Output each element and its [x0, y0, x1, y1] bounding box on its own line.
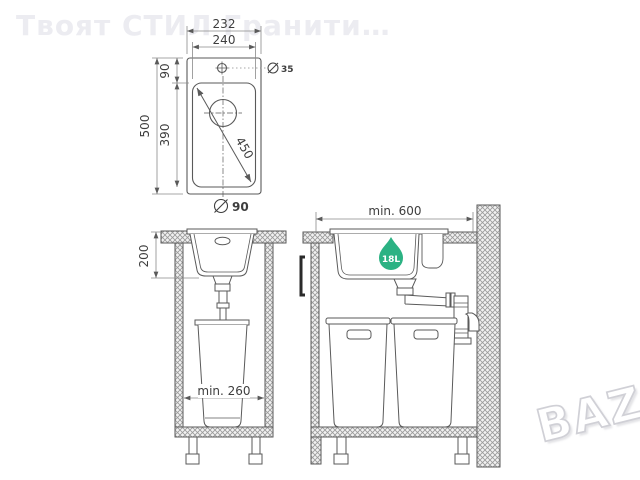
countertop-right: [253, 231, 286, 243]
dim-min-cabinet-depth: min. 600: [368, 204, 421, 218]
countertop-left-side: [303, 232, 333, 243]
faucet-hole-section: [215, 237, 230, 245]
cabinet-legs-side: [334, 437, 469, 464]
waste-bin-2: [391, 318, 457, 427]
waste-bin-1: [326, 318, 390, 427]
top-view: [187, 58, 261, 197]
drain-pipe-front: [213, 276, 232, 321]
product-diagram-image: Твоят СТИЛ Гранити…: [0, 0, 640, 480]
cabinet-legs-front: [186, 437, 262, 464]
drain-diameter-label: 90: [232, 200, 249, 214]
cabinet-wall-right: [265, 243, 273, 427]
dim-width-bowl: 240: [213, 33, 236, 47]
dim-height-top: 90: [158, 63, 172, 78]
dim-height-overall: 500: [138, 115, 152, 138]
cabinet-plinth: [311, 437, 321, 464]
diameter-symbol-90: [215, 200, 228, 213]
dim-width-overall: 232: [213, 17, 236, 31]
cabinet-wall-front-panel: [311, 243, 319, 427]
room-wall: [477, 205, 500, 467]
cabinet-bottom: [175, 427, 273, 437]
volume-label: 18L: [382, 255, 401, 265]
sink-section-front: [187, 229, 257, 276]
front-view: [161, 229, 286, 464]
dim-bowl-depth: 200: [137, 245, 151, 268]
dim-height-bowl: 390: [158, 124, 172, 147]
faucet-diameter-label: 35: [281, 65, 294, 75]
cabinet-bottom-side: [311, 427, 477, 437]
door-handle: [301, 257, 305, 295]
side-view: [301, 205, 500, 467]
cabinet-wall-left: [175, 243, 183, 427]
diameter-symbol-35: [268, 63, 278, 73]
waste-bucket: [195, 320, 249, 427]
dim-min-cabinet-width: min. 260: [197, 384, 250, 398]
